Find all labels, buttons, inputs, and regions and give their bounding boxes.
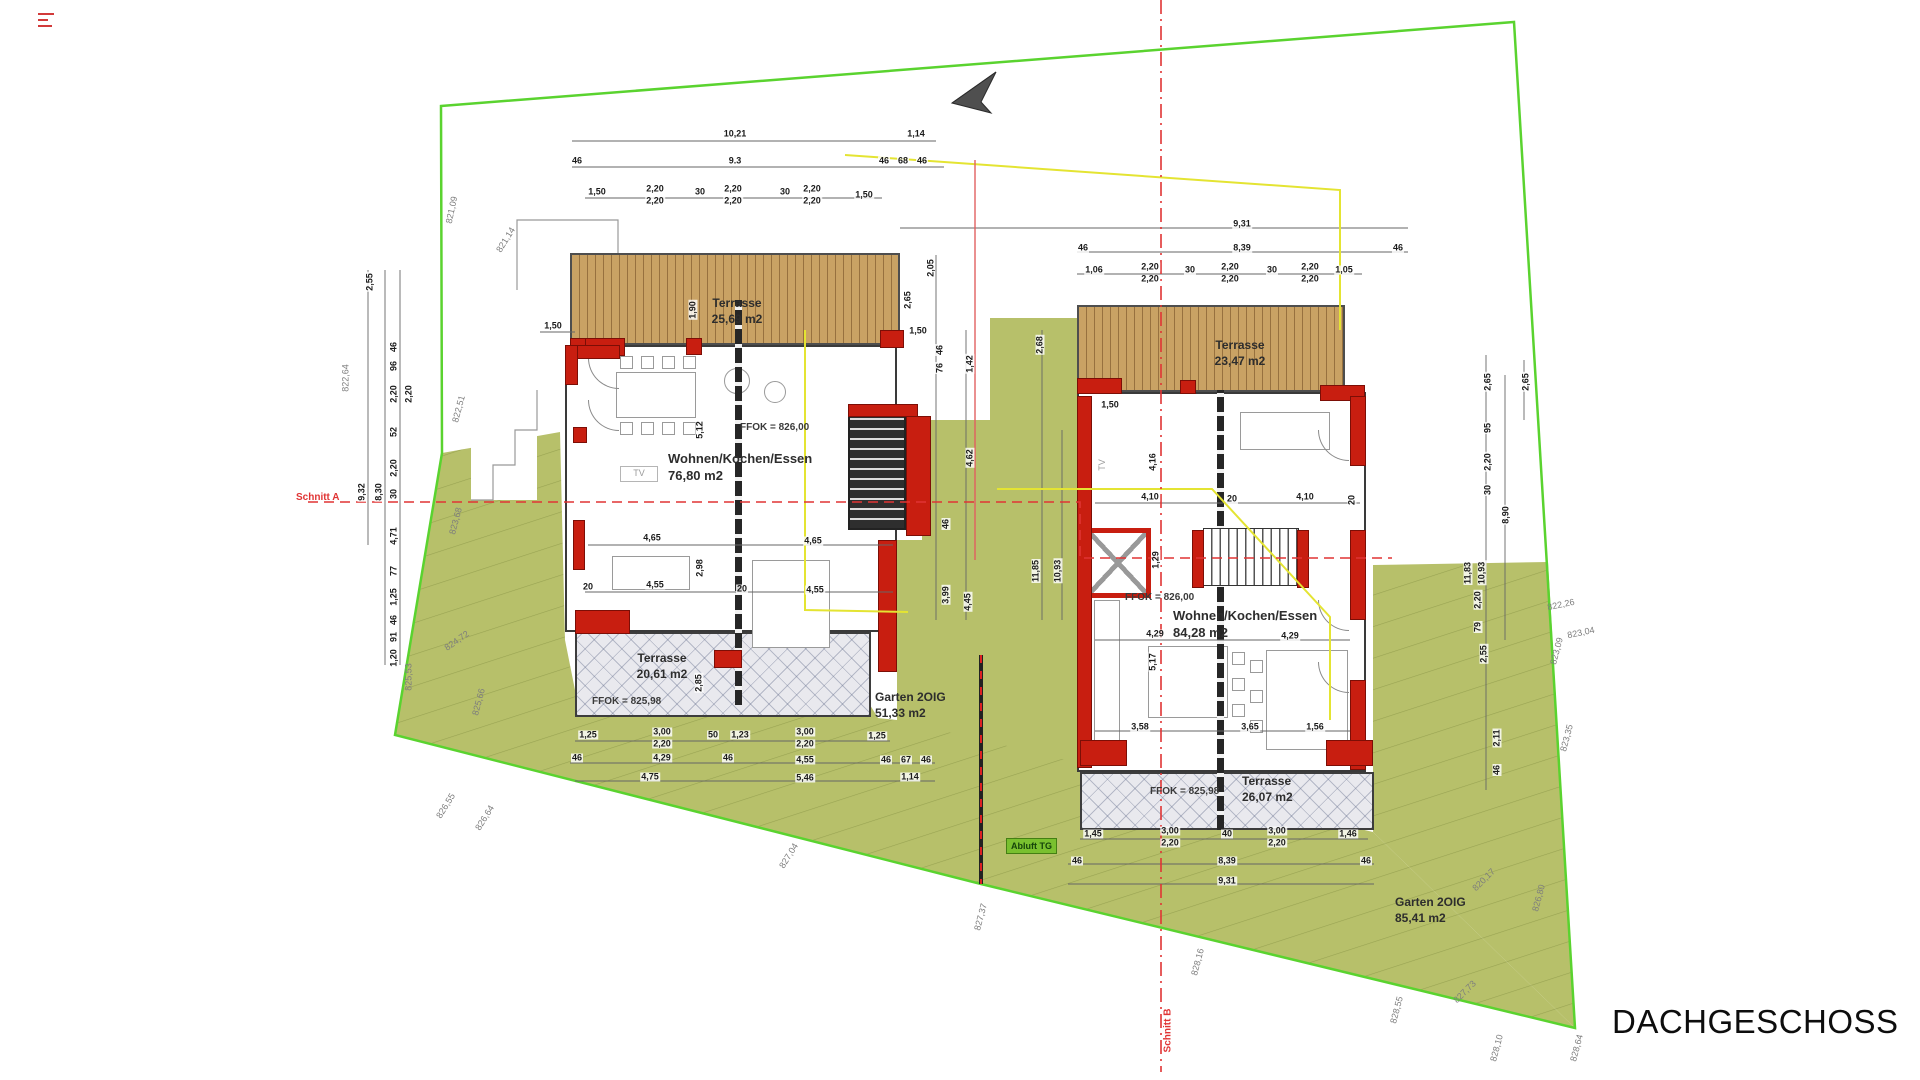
dim-label: 1,45 — [1083, 830, 1103, 839]
wall-segment — [880, 330, 904, 348]
dim-label: 3,65 — [1240, 723, 1260, 732]
dim-label: 20 — [1226, 495, 1238, 504]
dim-label: 2,20 — [1474, 590, 1483, 610]
room-area: 25,69 m2 — [712, 312, 763, 328]
dim-label: 2,20 — [1140, 263, 1160, 272]
dim-label: 8,39 — [1232, 244, 1252, 253]
north-arrow-icon — [952, 72, 996, 113]
dim-label: 2,20 — [1267, 839, 1287, 848]
chair — [1232, 652, 1245, 665]
dim-label: 4,29 — [652, 754, 672, 763]
right-elevator — [1085, 528, 1151, 598]
right-terrace-bottom-label: Terrasse 26,07 m2 — [1242, 774, 1293, 805]
chair — [641, 422, 654, 435]
dim-label: 4,45 — [964, 592, 973, 612]
room-name: Garten 2OIG — [1395, 895, 1466, 911]
dim-label: 67 — [900, 756, 912, 765]
dim-label: 2,20 — [1300, 275, 1320, 284]
wall-segment — [714, 650, 742, 668]
right-ffok-main: FFOK = 826,00 — [1125, 591, 1194, 604]
dim-label: 2,55 — [1480, 644, 1489, 664]
dim-label: 1,23 — [730, 731, 750, 740]
schnitt-a-label: Schnitt A — [296, 492, 340, 503]
dim-label: 4,10 — [1140, 493, 1160, 502]
dim-label: 4,16 — [1149, 452, 1158, 472]
dim-label: 1,42 — [966, 354, 975, 374]
dim-label: 77 — [390, 565, 399, 577]
right-terrace-top-label: Terrasse 23,47 m2 — [1215, 338, 1266, 369]
dim-label: 1,90 — [689, 300, 698, 320]
dim-label: 46 — [1493, 764, 1502, 776]
dim-label: 1,20 — [390, 648, 399, 668]
corner-logo — [38, 14, 54, 26]
tv-label-box: TV — [620, 466, 658, 482]
abluft-tg-badge: Abluft TG — [1006, 838, 1057, 854]
dim-label: 3,99 — [942, 585, 951, 605]
left-garden-label: Garten 2OIG 51,33 m2 — [875, 690, 946, 721]
wall-segment — [1350, 530, 1366, 620]
dim-label: 1,50 — [854, 191, 874, 200]
kitchen-island — [752, 560, 830, 648]
dim-label: 2,20 — [1160, 839, 1180, 848]
dim-label: 30 — [694, 188, 706, 197]
dim-label: 46 — [1392, 244, 1404, 253]
dim-label: 1,50 — [908, 327, 928, 336]
dim-label: 4,65 — [803, 537, 823, 546]
wall-segment — [1077, 396, 1092, 768]
dim-label: 46 — [1360, 857, 1372, 866]
dim-label: 30 — [1266, 266, 1278, 275]
chair — [620, 356, 633, 369]
chair — [1232, 678, 1245, 691]
abluft-tg-text: Abluft TG — [1011, 841, 1052, 851]
dim-label: 1,25 — [867, 732, 887, 741]
dim-label: 3,00 — [1160, 827, 1180, 836]
dim-label: 20 — [1348, 494, 1357, 506]
dim-label: 11,85 — [1032, 559, 1041, 583]
dim-label: 2,65 — [1484, 372, 1493, 392]
dim-label: 68 — [897, 157, 909, 166]
dim-label: 3,00 — [795, 728, 815, 737]
site-plan-base-linework — [0, 0, 1920, 1080]
chair — [1250, 660, 1263, 673]
chair — [662, 356, 675, 369]
dim-label: 2,20 — [645, 185, 665, 194]
dim-label: 1,25 — [578, 731, 598, 740]
elevation-label: 822,64 — [342, 364, 351, 392]
room-name: Terrasse — [637, 651, 688, 667]
dim-label: 79 — [1474, 621, 1483, 633]
room-name: Terrasse — [1215, 338, 1266, 354]
room-name: Wohnen/Kochen/Essen — [1173, 608, 1317, 625]
schnitt-a-text: Schnitt A — [296, 492, 340, 503]
dim-label: 10,93 — [1478, 561, 1487, 586]
schnitt-b-label: Schnitt B — [1162, 1009, 1173, 1053]
ffok-value: FFOK = 825,98 — [1150, 786, 1219, 797]
dim-label: 46 — [936, 344, 945, 356]
dim-label: 46 — [916, 157, 928, 166]
dim-label: 9,31 — [1217, 877, 1237, 886]
dim-label: 30 — [390, 488, 399, 500]
dim-label: 11,83 — [1464, 561, 1473, 585]
wall-segment — [686, 338, 702, 355]
dim-label: 10,21 — [723, 130, 748, 139]
ffok-value: FFOK = 826,00 — [740, 422, 809, 433]
dim-label: 9,32 — [358, 482, 367, 502]
dim-label: 2,20 — [723, 185, 743, 194]
chair — [620, 422, 633, 435]
wall-segment — [906, 416, 931, 536]
dim-label: 4,55 — [645, 581, 665, 590]
dim-label: 8,90 — [1502, 505, 1511, 525]
dim-label: 2,20 — [723, 197, 743, 206]
dim-label: 1,46 — [1338, 830, 1358, 839]
tv-label-rotated: TV — [1097, 459, 1107, 471]
dim-label: 76 — [936, 362, 945, 374]
wall-segment — [1297, 530, 1309, 588]
wall-segment — [1080, 740, 1127, 766]
dim-label: 8,39 — [1217, 857, 1237, 866]
dim-label: 2,20 — [1484, 452, 1493, 472]
dim-label: 4,62 — [966, 448, 975, 468]
dim-label: 4,65 — [642, 534, 662, 543]
room-area: 23,47 m2 — [1215, 354, 1266, 370]
tv-label: TV — [1097, 459, 1107, 471]
dim-label: 2,20 — [795, 740, 815, 749]
wall-segment — [1350, 396, 1366, 466]
dim-label: 40 — [1221, 830, 1233, 839]
dim-label: 46 — [880, 756, 892, 765]
sofa — [1240, 412, 1330, 450]
wall-segment — [1180, 380, 1196, 394]
left-ffok-terrace: FFOK = 825,98 — [592, 695, 661, 708]
dim-label: 2,20 — [802, 185, 822, 194]
page-title: DACHGESCHOSS — [1612, 1003, 1899, 1041]
dim-label: 20 — [582, 583, 594, 592]
room-name: Garten 2OIG — [875, 690, 946, 706]
left-staircase — [848, 414, 906, 530]
dim-label: 5,17 — [1149, 652, 1158, 672]
room-area: 51,33 m2 — [875, 706, 946, 722]
dim-label: 30 — [779, 188, 791, 197]
room-name: Terrasse — [1242, 774, 1293, 790]
wall-segment — [573, 520, 585, 570]
wall-segment — [878, 540, 897, 672]
dim-label: 3,00 — [1267, 827, 1287, 836]
dim-label: 1,14 — [900, 773, 920, 782]
room-area: 26,07 m2 — [1242, 790, 1293, 806]
dim-label: 30 — [1484, 484, 1493, 496]
dim-label: 1,06 — [1084, 266, 1104, 275]
dim-label: 5,46 — [795, 774, 815, 783]
dim-label: 9.3 — [728, 157, 743, 166]
left-living-label: Wohnen/Kochen/Essen 76,80 m2 — [668, 451, 812, 485]
dim-label: 2,85 — [695, 673, 704, 693]
elevation-label: 825,53 — [405, 663, 414, 691]
dim-label: 46 — [571, 157, 583, 166]
dim-label: 46 — [1077, 244, 1089, 253]
dim-label: 1,56 — [1305, 723, 1325, 732]
ffok-value: FFOK = 825,98 — [592, 696, 661, 707]
left-terrace-bottom-label: Terrasse 20,61 m2 — [637, 651, 688, 682]
wall-segment — [1192, 530, 1204, 588]
room-name: Terrasse — [712, 296, 763, 312]
room-area: 20,61 m2 — [637, 667, 688, 683]
dim-label: 4,55 — [795, 756, 815, 765]
dim-label: 46 — [1071, 857, 1083, 866]
right-garden-label: Garten 2OIG 85,41 m2 — [1395, 895, 1466, 926]
dim-label: 2,20 — [1220, 275, 1240, 284]
dim-label: 3,58 — [1130, 723, 1150, 732]
dim-label: 46 — [878, 157, 890, 166]
right-staircase — [1203, 528, 1299, 586]
wall-segment — [573, 427, 587, 443]
dim-label: 2,11 — [1493, 728, 1502, 747]
dim-label: 3,00 — [652, 728, 672, 737]
kitchen-counter — [1094, 600, 1120, 755]
dim-label: 30 — [1184, 266, 1196, 275]
dim-label: 1,50 — [543, 322, 563, 331]
dim-label: 4,75 — [640, 773, 660, 782]
dim-label: 2,65 — [904, 290, 913, 310]
dim-label: 2,55 — [366, 272, 375, 292]
dim-label: 2,65 — [1522, 372, 1531, 392]
dim-label: 2,20 — [645, 197, 665, 206]
dim-label: 1,29 — [1152, 550, 1161, 570]
dim-label: 2,98 — [696, 558, 705, 578]
dining-table — [616, 372, 696, 418]
left-ffok-main: FFOK = 826,00 — [740, 421, 809, 434]
dim-label: 4,29 — [1145, 630, 1165, 639]
dim-label: 2,20 — [390, 458, 399, 478]
floor-plan-canvas: TV TV Terrasse 25,69 m2 Wohnen/Kochen/E — [0, 0, 1920, 1080]
dim-label: 2,20 — [1300, 263, 1320, 272]
left-terrace-top-label: Terrasse 25,69 m2 — [712, 296, 763, 327]
garden-strip-right-of-gap — [990, 318, 1077, 420]
wall-segment — [1077, 378, 1122, 394]
dim-label: 91 — [390, 631, 399, 643]
dim-label: 8,30 — [375, 482, 384, 502]
chair — [1232, 704, 1245, 717]
dim-label: 46 — [920, 756, 932, 765]
dim-label: 2,20 — [1140, 275, 1160, 284]
round-chair — [764, 381, 786, 403]
chair — [1250, 690, 1263, 703]
dim-label: 46 — [390, 341, 399, 353]
dim-label: 2,05 — [927, 258, 936, 278]
dim-label: 46 — [390, 614, 399, 626]
dim-label: 95 — [1484, 422, 1493, 434]
wall-segment — [1326, 740, 1373, 766]
dim-label: 96 — [390, 360, 399, 372]
dim-label: 20 — [736, 585, 748, 594]
dim-label: 46 — [722, 754, 734, 763]
dim-label: 4,29 — [1280, 632, 1300, 641]
left-ridge-line — [735, 300, 742, 705]
dim-label: 2,20 — [802, 197, 822, 206]
dim-label: 1,50 — [587, 188, 607, 197]
wall-segment — [575, 610, 630, 634]
dim-label: 4,71 — [390, 526, 399, 546]
chair — [641, 356, 654, 369]
dim-label: 1,14 — [906, 130, 926, 139]
dim-label: 50 — [707, 731, 719, 740]
neighbor-outline-fill — [471, 390, 537, 500]
tv-label: TV — [633, 468, 645, 478]
dim-label: 9,31 — [1232, 220, 1252, 229]
dim-label: 46 — [942, 518, 951, 530]
dim-label: 1,25 — [390, 587, 399, 607]
right-ffok-terrace: FFOK = 825,98 — [1150, 785, 1219, 798]
dim-label: 2,20 — [1220, 263, 1240, 272]
schnitt-b-text: Schnitt B — [1162, 1009, 1173, 1053]
dim-label: 2,20 — [405, 384, 414, 404]
dim-label: 4,10 — [1295, 493, 1315, 502]
dim-label: 52 — [390, 426, 399, 438]
dim-label: 2,20 — [652, 740, 672, 749]
dim-label: 5,12 — [696, 420, 705, 440]
dim-label: 10,93 — [1054, 559, 1063, 584]
chair — [683, 356, 696, 369]
room-name: Wohnen/Kochen/Essen — [668, 451, 812, 468]
right-terrace-bottom-deck — [1080, 772, 1374, 830]
ffok-value: FFOK = 826,00 — [1125, 592, 1194, 603]
dim-label: 4,55 — [805, 586, 825, 595]
wall-segment — [565, 345, 578, 385]
dim-label: 46 — [571, 754, 583, 763]
dim-label: 2,68 — [1036, 335, 1045, 355]
dim-label: 1,05 — [1334, 266, 1354, 275]
room-area: 76,80 m2 — [668, 468, 812, 485]
chair — [662, 422, 675, 435]
kitchen-island — [1148, 646, 1228, 718]
dim-label: 1,50 — [1100, 401, 1120, 410]
room-area: 85,41 m2 — [1395, 911, 1466, 927]
dim-label: 2,20 — [390, 384, 399, 404]
